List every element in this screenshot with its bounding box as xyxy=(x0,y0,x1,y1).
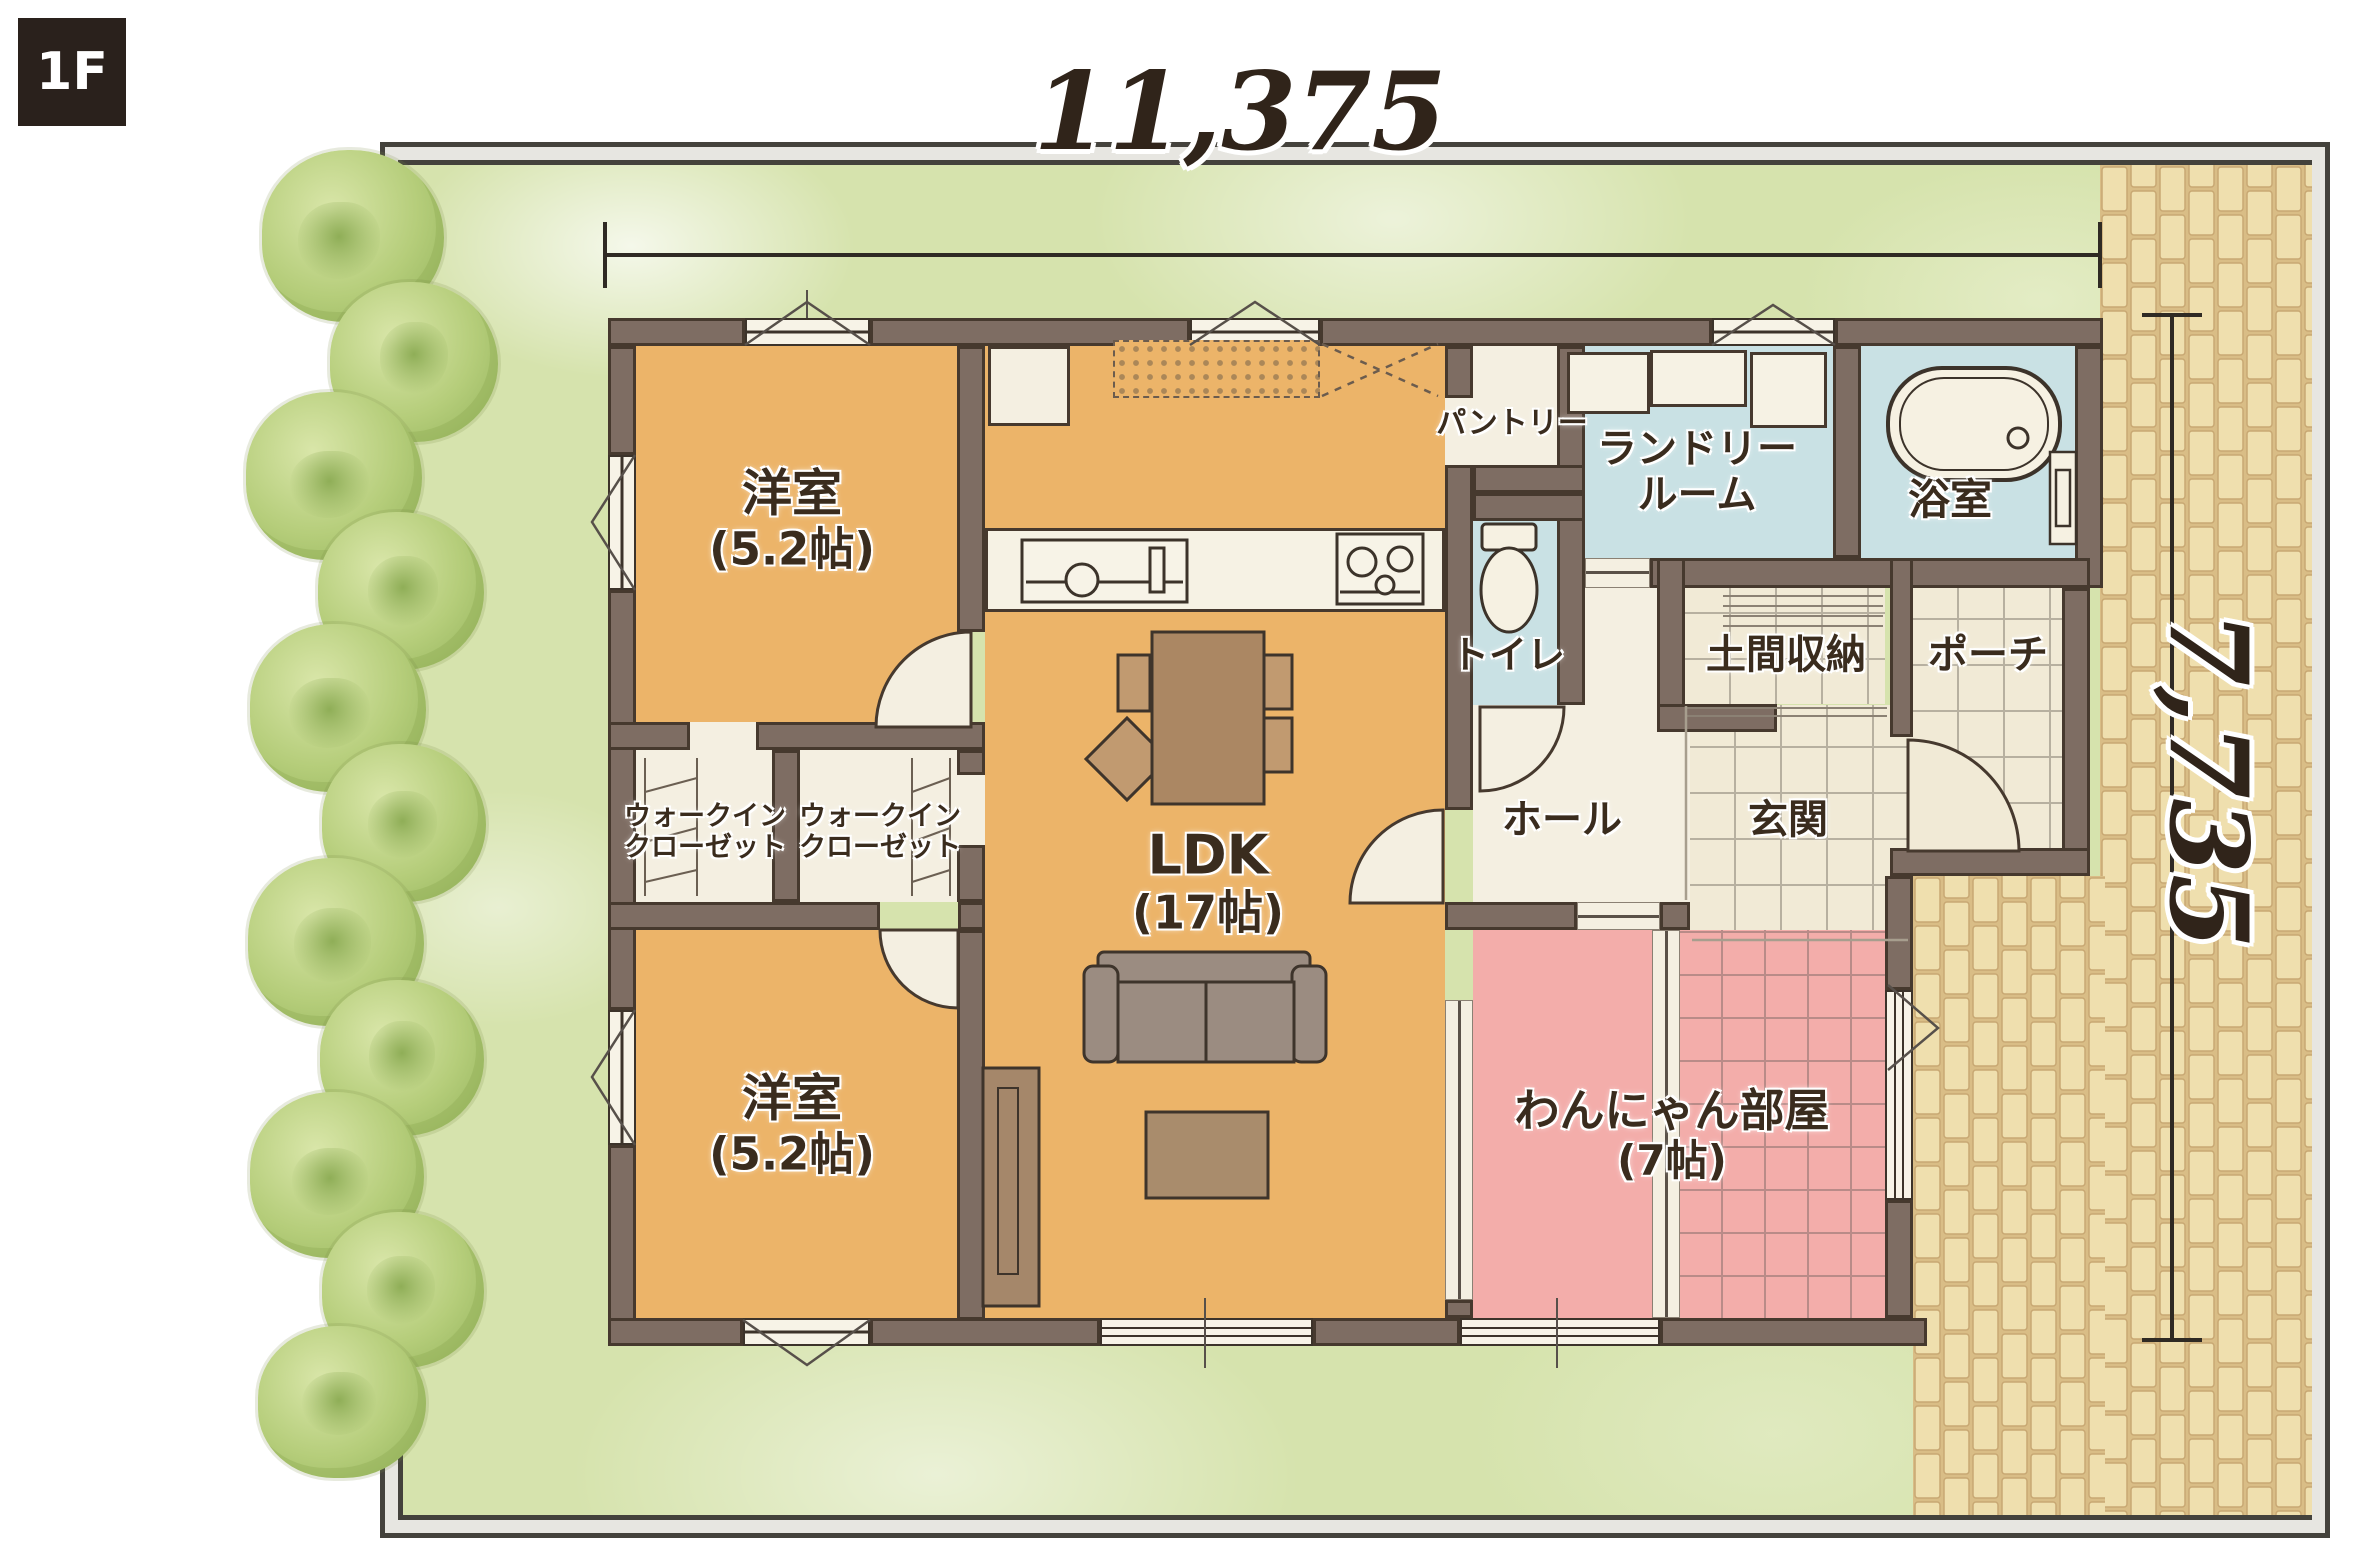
dining-set xyxy=(1086,632,1292,804)
kitchen-stove xyxy=(1337,534,1423,604)
door-arc-bedroom-top xyxy=(876,632,971,727)
room-name: 洋室 xyxy=(709,1070,875,1128)
tv-board xyxy=(983,1068,1039,1306)
bath-counter xyxy=(2050,452,2076,544)
room-name: ランドリー xyxy=(1597,426,1797,472)
label-genkan: 玄関 xyxy=(1748,797,1828,843)
floor-badge: 1F xyxy=(18,18,126,126)
bathtub xyxy=(1888,368,2060,480)
room-name: ウォークイン xyxy=(624,801,786,832)
room-size: (5.2帖) xyxy=(709,1128,875,1180)
room-name: 玄関 xyxy=(1748,797,1828,843)
room-name: 洋室 xyxy=(709,465,875,523)
room-name: わんにゃん部屋 xyxy=(1514,1085,1829,1137)
label-wic-left: ウォークイン クローゼット xyxy=(624,801,786,863)
label-toilet: トイレ xyxy=(1451,634,1565,678)
label-pet-room: わんにゃん部屋 (7帖) xyxy=(1514,1085,1829,1185)
kitchen-sink xyxy=(1022,540,1187,602)
label-bath: 浴室 xyxy=(1908,476,1992,524)
room-name: 土間収納 xyxy=(1706,632,1866,678)
room-name: ホール xyxy=(1502,797,1622,843)
plan-linework xyxy=(0,0,2362,1561)
door-arc-hall-ldk xyxy=(1350,810,1443,903)
room-name: クローゼット xyxy=(624,832,786,863)
room-name: ルーム xyxy=(1597,472,1797,518)
label-doma: 土間収納 xyxy=(1706,632,1866,678)
sofa xyxy=(1084,952,1326,1062)
label-bedroom-top: 洋室 (5.2帖) xyxy=(709,465,875,574)
label-bedroom-bottom: 洋室 (5.2帖) xyxy=(709,1070,875,1179)
room-name: トイレ xyxy=(1451,634,1565,678)
door-arc-bedroom-bottom xyxy=(880,930,958,1008)
toilet-fixture xyxy=(1481,524,1537,632)
door-arc-entry xyxy=(1908,740,2019,851)
room-name: クローゼット xyxy=(799,832,961,863)
label-ldk: LDK (17帖) xyxy=(1132,825,1284,940)
room-name: ポーチ xyxy=(1928,632,2048,678)
door-arc-toilet xyxy=(1480,707,1564,791)
room-size: (17帖) xyxy=(1132,887,1284,940)
label-hall: ホール xyxy=(1502,797,1622,843)
rug xyxy=(1146,1112,1268,1198)
label-wic-right: ウォークイン クローゼット xyxy=(799,801,961,863)
dimension-height: 7,735 xyxy=(2145,611,2271,949)
room-name: パントリー xyxy=(1436,407,1588,442)
room-size: (5.2帖) xyxy=(709,523,875,575)
dimension-width: 11,375 xyxy=(1033,49,1446,175)
room-name: ウォークイン xyxy=(799,801,961,832)
room-name: LDK xyxy=(1132,825,1284,887)
room-name: 浴室 xyxy=(1908,476,1992,524)
floorplan-page: 洋室 (5.2帖) 洋室 (5.2帖) ウォークイン クローゼット ウォークイン… xyxy=(0,0,2362,1561)
label-pantry: パントリー xyxy=(1436,407,1588,442)
label-laundry: ランドリー ルーム xyxy=(1597,426,1797,518)
room-size: (7帖) xyxy=(1514,1137,1829,1185)
fridge-dashed-marks xyxy=(1322,344,1438,396)
label-porch: ポーチ xyxy=(1928,632,2048,678)
